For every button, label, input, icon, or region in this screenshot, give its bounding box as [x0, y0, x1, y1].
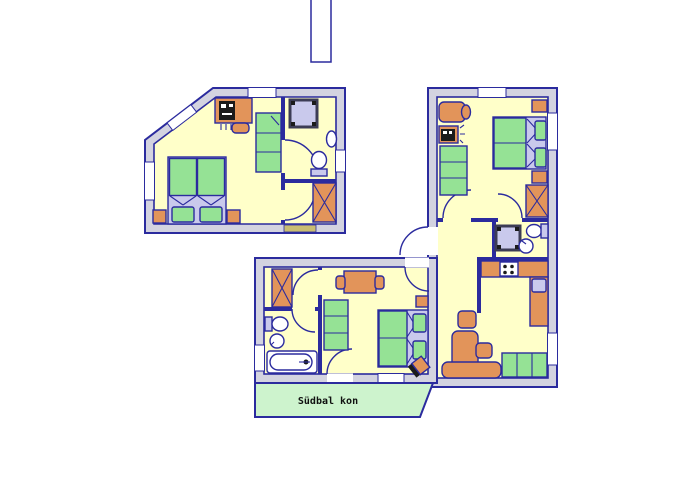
pillow: [172, 207, 194, 222]
interior-wall: [281, 173, 285, 190]
interior-wall: [522, 218, 548, 222]
chair: [336, 276, 345, 289]
interior-wall: [315, 307, 322, 311]
interior-wall: [281, 220, 285, 224]
door-arc: [400, 227, 428, 255]
entrance-door-opening: [405, 258, 429, 268]
wardrobe: [272, 269, 292, 307]
sofa: [440, 146, 467, 195]
sofa: [324, 300, 348, 350]
interior-wall: [318, 295, 322, 374]
window-sill: [284, 225, 316, 232]
sofa: [256, 113, 281, 172]
wash-basin: [327, 131, 337, 147]
toilet: [265, 317, 288, 331]
computer-icon: [219, 101, 235, 120]
side-table: [476, 343, 492, 358]
apartment-lower: [255, 258, 438, 384]
wardrobe: [313, 183, 336, 222]
apartment-left-studio: [145, 88, 346, 234]
nightstand: [153, 210, 166, 223]
toilet: [527, 224, 549, 238]
nightstand: [227, 210, 240, 223]
pillow: [200, 207, 222, 222]
stove: [500, 262, 518, 276]
balcony: Südbal kon: [255, 383, 433, 417]
floor-plan-canvas: Südbal kon: [0, 0, 700, 500]
bathtub: [267, 351, 317, 373]
nightstand: [532, 171, 547, 183]
wash-basin: [270, 334, 284, 348]
sofa: [502, 353, 547, 377]
entrance-door-opening: [427, 227, 438, 255]
shower: [496, 226, 520, 250]
window: [145, 162, 155, 200]
double-bed: [493, 117, 546, 169]
stairwell-shaft: [311, 0, 331, 62]
interior-wall: [471, 218, 498, 222]
armchair: [439, 102, 471, 122]
pillow: [535, 148, 546, 167]
balcony-label: Südbal kon: [298, 396, 358, 407]
side-table: [458, 311, 476, 328]
wash-basin: [519, 239, 533, 253]
window: [478, 88, 506, 98]
pillow: [413, 341, 426, 359]
nightstand: [532, 100, 547, 112]
desk-chair: [232, 123, 249, 133]
window: [336, 150, 346, 172]
duvet: [198, 159, 225, 196]
pillow: [413, 314, 426, 332]
pillow: [535, 121, 546, 140]
interior-wall: [318, 267, 322, 270]
shower: [290, 100, 317, 127]
floor-plan-drawing: Südbal kon: [0, 0, 700, 500]
window: [255, 345, 265, 371]
window: [548, 333, 558, 365]
duvet: [170, 159, 197, 196]
chair: [375, 276, 384, 289]
nightstand: [416, 296, 428, 307]
kitchen-sink: [532, 279, 546, 292]
double-bed: [168, 157, 226, 224]
computer-icon: [441, 129, 455, 141]
interior-wall: [437, 218, 443, 222]
window: [248, 88, 276, 98]
toilet: [311, 152, 327, 177]
window: [548, 113, 558, 150]
wardrobe: [526, 185, 548, 217]
